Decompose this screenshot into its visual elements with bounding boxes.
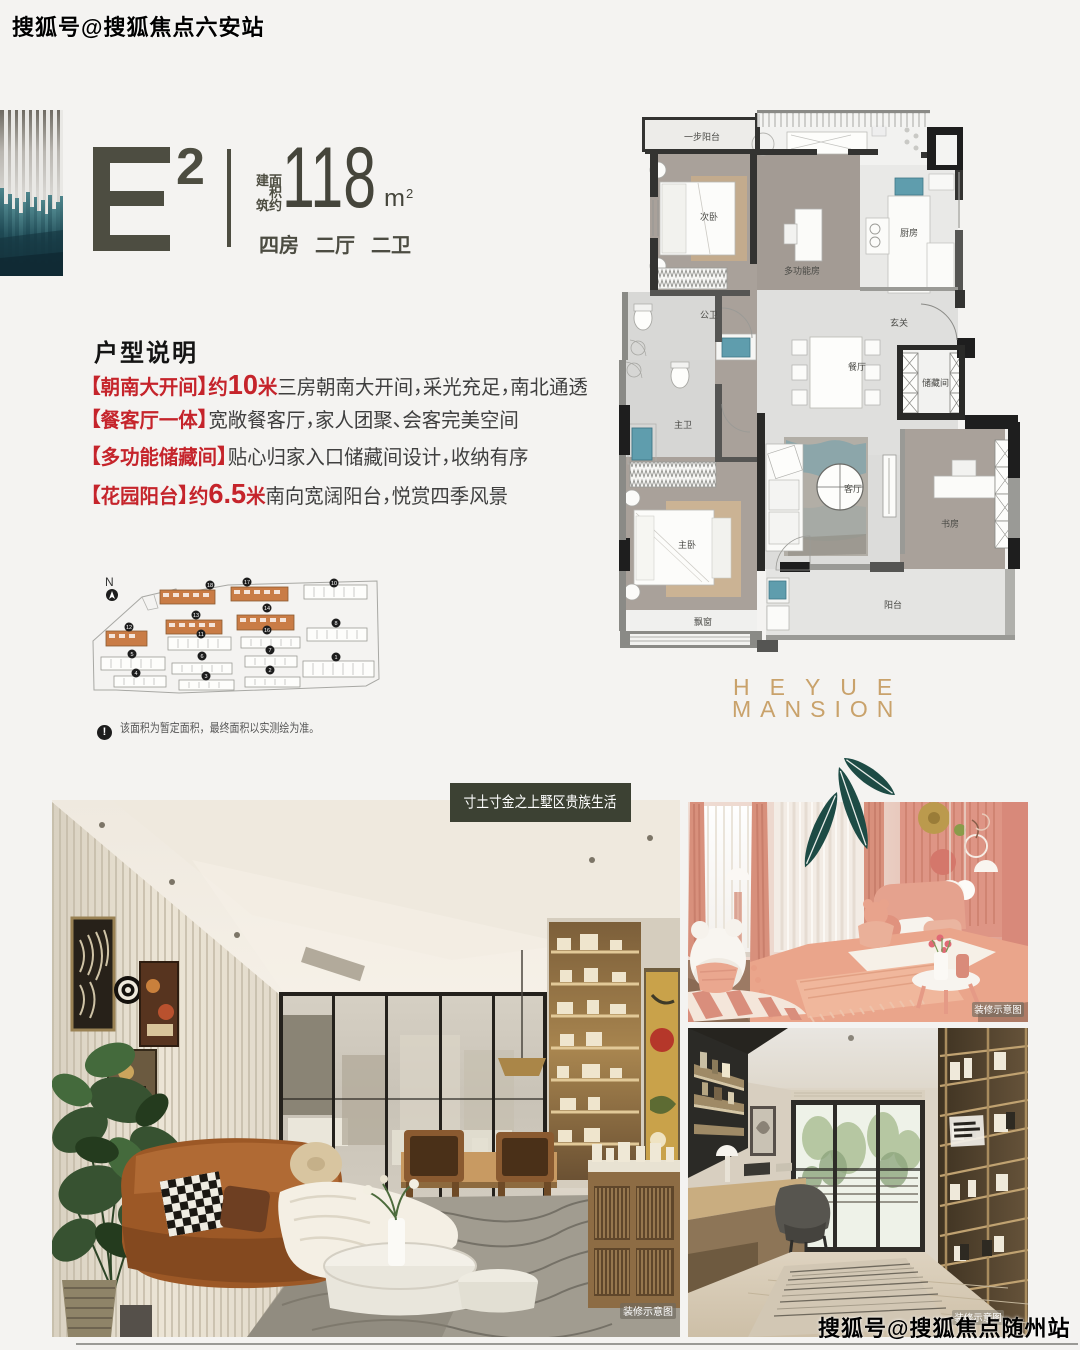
svg-text:一步阳台: 一步阳台 — [684, 131, 720, 142]
svg-text:客厅: 客厅 — [844, 483, 862, 494]
svg-text:6: 6 — [200, 654, 203, 660]
svg-text:书房: 书房 — [941, 518, 959, 529]
svg-text:14: 14 — [264, 606, 270, 612]
svg-text:118: 118 — [282, 146, 376, 216]
svg-text:2: 2 — [268, 668, 271, 674]
svg-text:2: 2 — [176, 140, 205, 196]
svg-text:储藏间: 储藏间 — [922, 377, 949, 388]
svg-text:飘窗: 飘窗 — [694, 616, 712, 627]
svg-text:装修示意图: 装修示意图 — [623, 1305, 673, 1318]
svg-text:装修示意图: 装修示意图 — [974, 1004, 1022, 1016]
svg-text:13: 13 — [193, 613, 199, 619]
svg-text:厨房: 厨房 — [900, 227, 918, 238]
svg-text:主卧: 主卧 — [678, 539, 696, 550]
svg-text:18: 18 — [207, 583, 213, 589]
svg-text:3: 3 — [204, 674, 207, 680]
svg-text:7: 7 — [268, 648, 271, 654]
svg-text:5: 5 — [130, 652, 133, 658]
svg-text:17: 17 — [244, 580, 250, 586]
svg-text:11: 11 — [198, 632, 204, 638]
svg-text:公卫: 公卫 — [700, 310, 718, 320]
svg-text:m: m — [384, 185, 405, 212]
svg-text:多功能房: 多功能房 — [784, 265, 820, 276]
svg-text:1: 1 — [334, 655, 337, 661]
svg-text:8: 8 — [334, 621, 337, 627]
svg-text:玄关: 玄关 — [890, 317, 908, 328]
svg-text:10: 10 — [331, 581, 337, 587]
svg-text:4: 4 — [134, 671, 137, 677]
svg-text:次卧: 次卧 — [700, 211, 718, 222]
svg-text:阳台: 阳台 — [884, 599, 902, 610]
svg-text:主卫: 主卫 — [674, 419, 692, 430]
svg-text:2: 2 — [406, 186, 413, 201]
svg-text:12: 12 — [126, 625, 132, 631]
svg-text:N: N — [105, 575, 114, 589]
svg-text:16: 16 — [264, 628, 270, 634]
svg-text:餐厅: 餐厅 — [848, 361, 866, 372]
